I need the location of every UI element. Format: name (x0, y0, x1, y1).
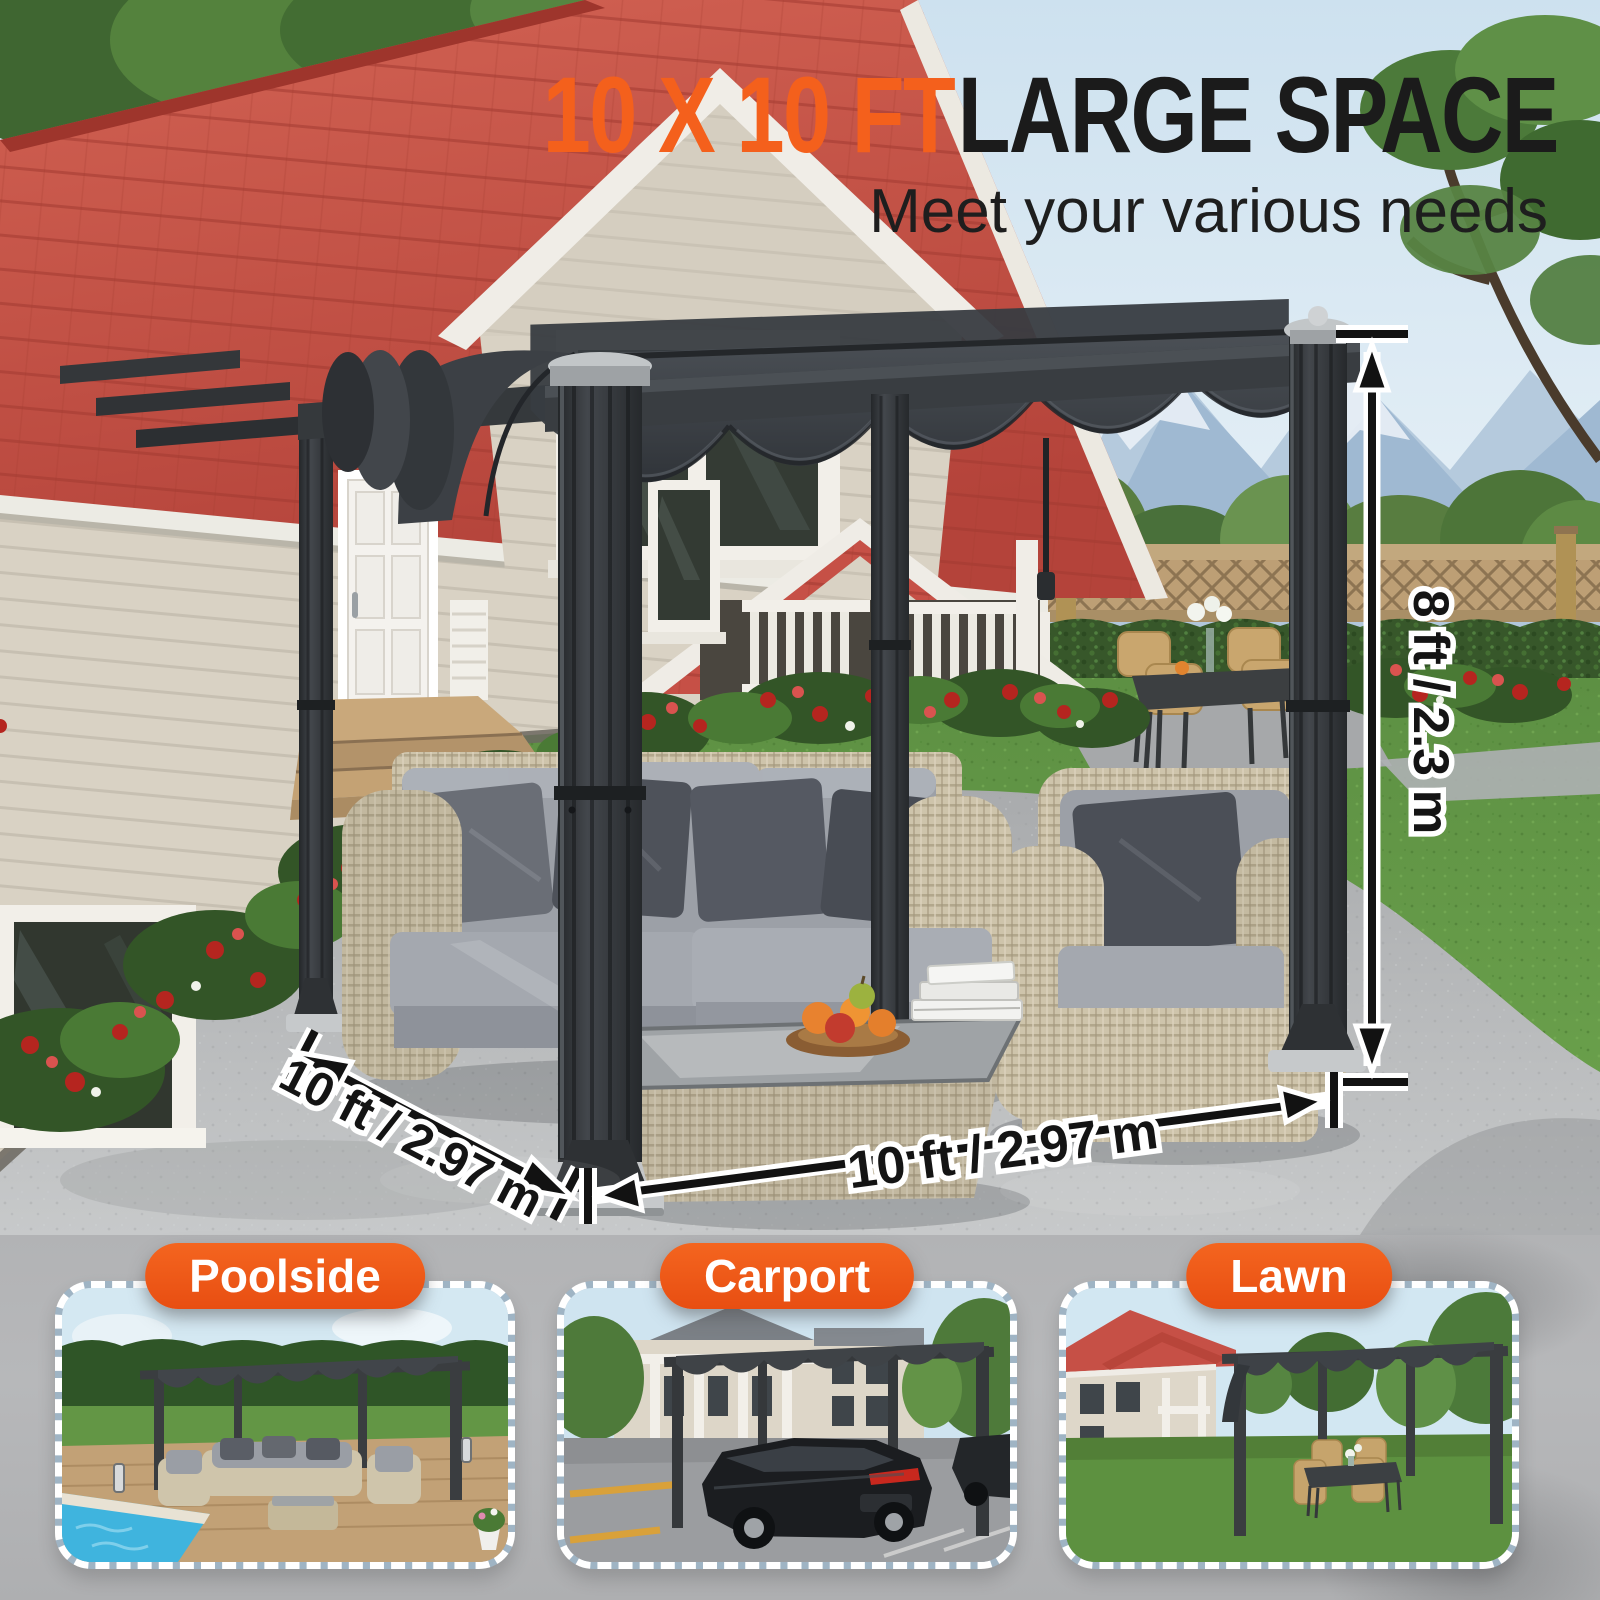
badge-lawn: Lawn (1186, 1243, 1392, 1309)
side-window (642, 480, 726, 644)
use-case-card-lawn (1059, 1281, 1519, 1569)
use-case-strip: Poolside Carport Lawn (0, 1235, 1600, 1600)
black-car (702, 1438, 932, 1549)
badge-carport: Carport (660, 1243, 914, 1309)
headline: 10 X 10 FT LARGE SPACE (543, 60, 1558, 170)
headline-rest: LARGE SPACE (958, 54, 1558, 175)
books (912, 962, 1022, 1020)
badge-poolside: Poolside (145, 1243, 425, 1309)
use-case-card-carport (557, 1281, 1017, 1569)
headline-highlight: 10 X 10 FT (543, 54, 954, 175)
use-case-card-poolside (55, 1281, 515, 1569)
carport-image (564, 1288, 1010, 1562)
lawn-image (1066, 1288, 1512, 1562)
product-marketing-image: 10 X 10 FT LARGE SPACE Meet your various… (0, 0, 1600, 1600)
poolside-image (62, 1288, 508, 1562)
pergola-post-back-right (869, 394, 911, 1034)
headline-subtitle: Meet your various needs (869, 176, 1548, 247)
